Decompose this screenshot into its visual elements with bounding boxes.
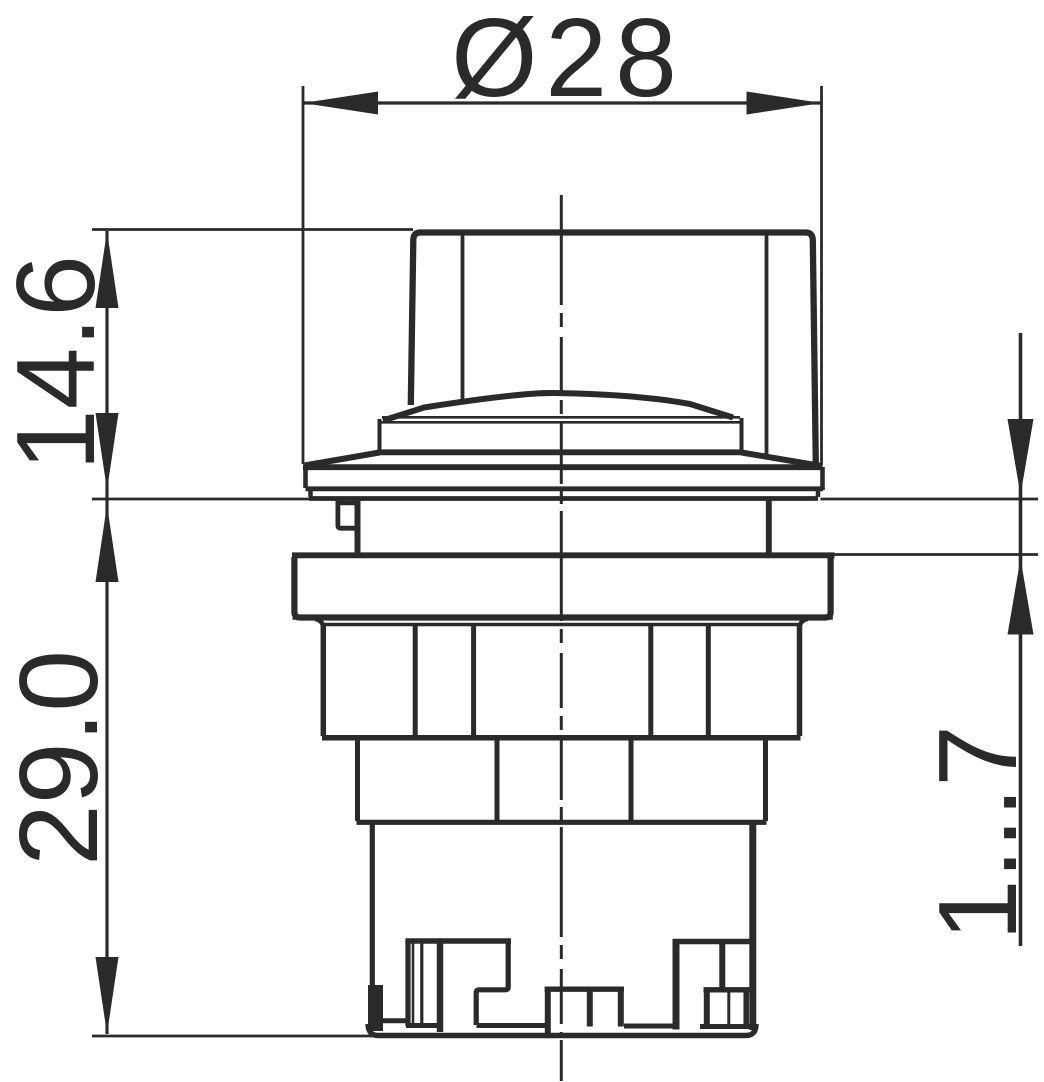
svg-text:1...7: 1...7 bbox=[916, 725, 1040, 941]
svg-text:29.0: 29.0 bbox=[0, 650, 121, 866]
svg-text:Ø28: Ø28 bbox=[451, 0, 685, 120]
svg-text:14.6: 14.6 bbox=[0, 255, 118, 471]
